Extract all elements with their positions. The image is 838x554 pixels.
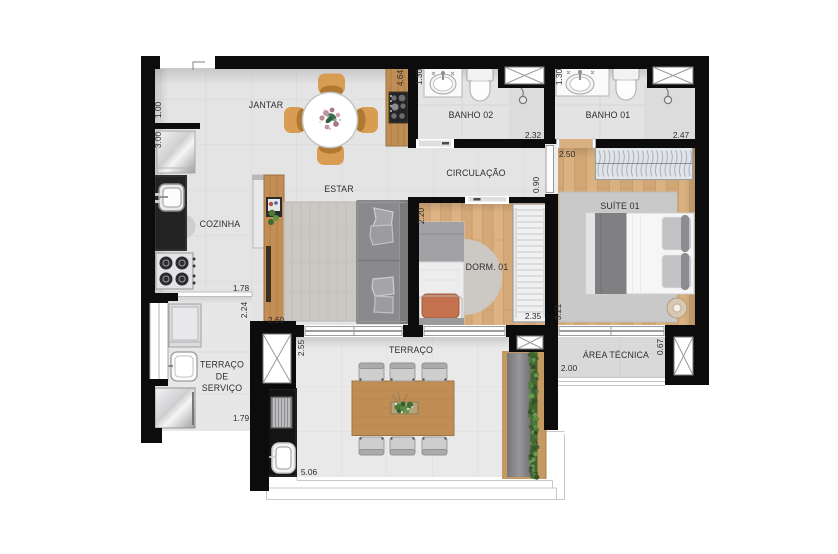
svg-text:4.64: 4.64	[395, 70, 405, 87]
svg-text:2.00: 2.00	[561, 363, 578, 373]
svg-text:SUÍTE 01: SUÍTE 01	[600, 201, 639, 211]
svg-text:BANHO 02: BANHO 02	[449, 110, 494, 120]
svg-text:1.30: 1.30	[554, 69, 564, 86]
svg-text:0.67: 0.67	[655, 339, 665, 356]
svg-text:COZINHA: COZINHA	[200, 219, 241, 229]
svg-text:0.90: 0.90	[531, 177, 541, 194]
svg-text:2.24: 2.24	[239, 302, 249, 319]
svg-text:2.50: 2.50	[559, 149, 576, 159]
svg-text:ÁREA TÉCNICA: ÁREA TÉCNICA	[583, 350, 649, 360]
svg-text:TERRAÇO: TERRAÇO	[389, 345, 433, 355]
svg-text:BANHO 01: BANHO 01	[586, 110, 631, 120]
svg-text:1.30: 1.30	[414, 69, 424, 86]
svg-text:3.21: 3.21	[553, 304, 563, 321]
svg-text:SERVIÇO: SERVIÇO	[202, 383, 243, 393]
svg-text:CIRCULAÇÃO: CIRCULAÇÃO	[446, 168, 505, 178]
svg-text:DORM. 01: DORM. 01	[466, 262, 509, 272]
svg-text:TERRAÇO: TERRAÇO	[200, 360, 244, 370]
svg-text:2.60: 2.60	[268, 315, 285, 325]
svg-text:JANTAR: JANTAR	[249, 100, 283, 110]
svg-text:ESTAR: ESTAR	[324, 184, 353, 194]
svg-text:1.79: 1.79	[233, 413, 250, 423]
svg-text:2.32: 2.32	[525, 130, 542, 140]
svg-text:2.35: 2.35	[525, 311, 542, 321]
svg-text:DE: DE	[216, 372, 229, 382]
svg-text:3.00: 3.00	[153, 132, 163, 149]
svg-text:1.00: 1.00	[153, 102, 163, 119]
svg-text:1.78: 1.78	[233, 283, 250, 293]
svg-text:2.55: 2.55	[296, 340, 306, 357]
svg-text:5.06: 5.06	[301, 467, 318, 477]
svg-text:2.20: 2.20	[416, 208, 426, 225]
svg-text:2.47: 2.47	[673, 130, 690, 140]
